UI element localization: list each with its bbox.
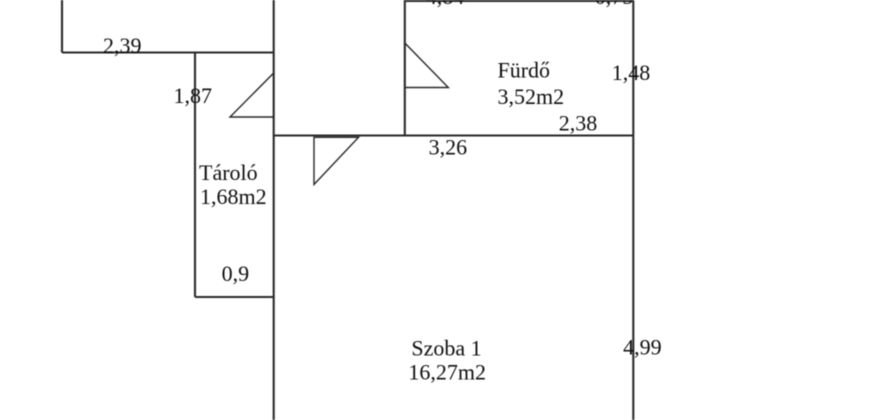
svg-text:3,26: 3,26 (429, 135, 468, 160)
svg-text:16,27m2: 16,27m2 (408, 360, 486, 385)
svg-text:4,84: 4,84 (426, 0, 465, 9)
svg-text:1,68m2: 1,68m2 (200, 184, 267, 209)
svg-text:Fürdő: Fürdő (498, 58, 551, 83)
svg-text:Szoba 1: Szoba 1 (411, 336, 481, 361)
svg-text:1,48: 1,48 (612, 60, 651, 85)
svg-text:4,99: 4,99 (623, 335, 662, 360)
svg-text:0,9: 0,9 (222, 261, 250, 286)
svg-text:2,38: 2,38 (559, 111, 598, 136)
svg-text:0,75: 0,75 (595, 0, 634, 9)
svg-text:Tároló: Tároló (199, 160, 258, 185)
svg-text:3,52m2: 3,52m2 (498, 84, 565, 109)
svg-text:1,87: 1,87 (174, 83, 213, 108)
svg-text:2,39: 2,39 (103, 33, 142, 58)
